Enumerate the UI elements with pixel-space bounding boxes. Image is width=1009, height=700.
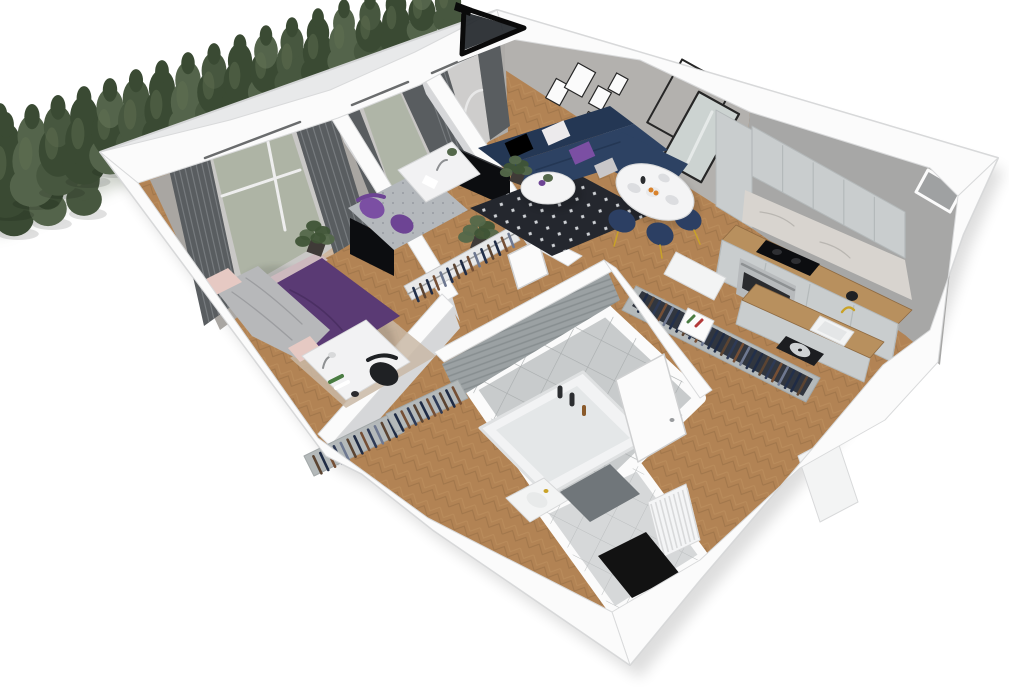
desk-candle [351,391,359,397]
basin-faucet [544,489,549,493]
study-desk-plant [447,148,457,156]
dining-bottle [641,176,646,184]
apartment-3d-render [0,0,1009,700]
cooktop-burner [772,249,782,255]
fruit [649,188,654,193]
cooktop-burner [791,258,801,264]
desk-lamp-shade [328,352,336,358]
coffee-table-vase [539,180,546,186]
bathroom-door-handle [670,418,675,422]
floor-plan-stage [0,0,1009,700]
fruit [654,191,659,196]
turntable-spindle [798,349,802,352]
coffee-table-plant [543,174,553,182]
